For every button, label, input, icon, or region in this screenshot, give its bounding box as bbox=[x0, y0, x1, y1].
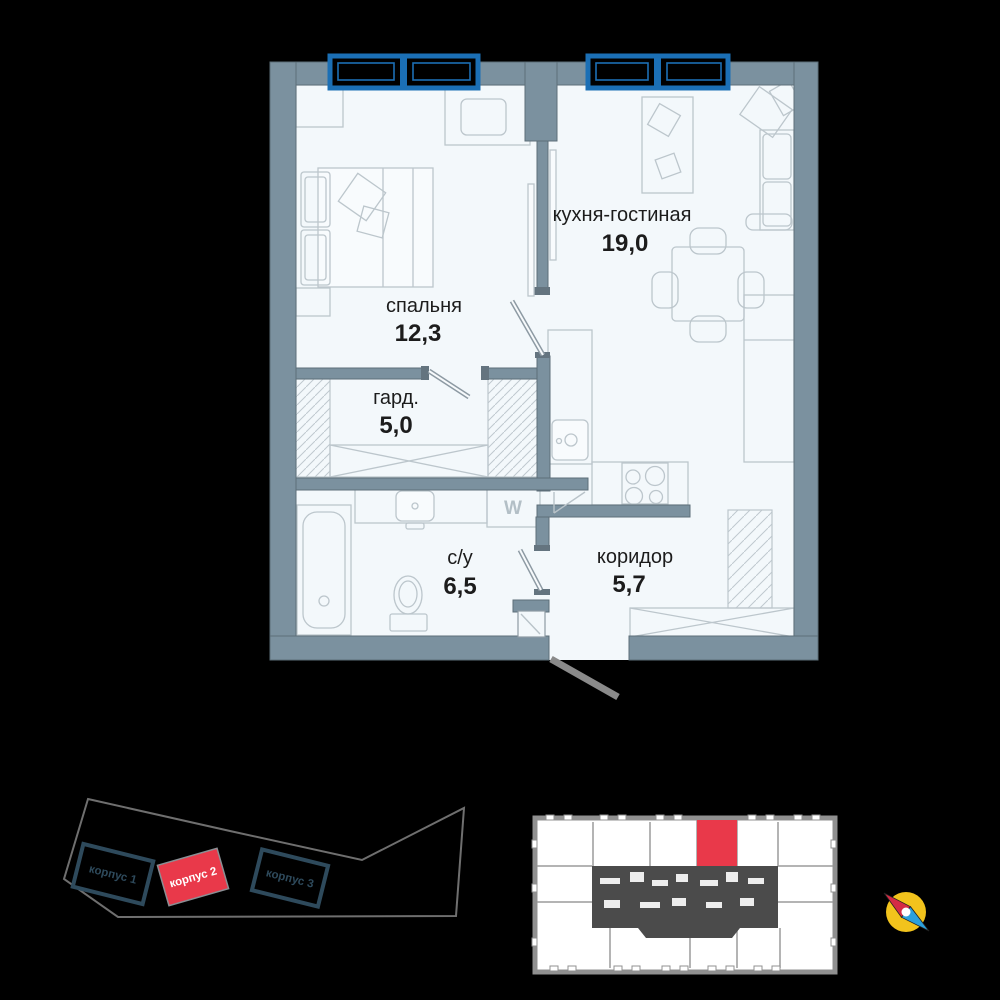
compass-pivot bbox=[902, 908, 911, 917]
wall-bottom-left bbox=[270, 636, 549, 660]
window-2 bbox=[588, 56, 728, 88]
room-area-bedroom: 12,3 bbox=[395, 320, 442, 347]
site-plan: корпус 1 корпус 2 корпус 3 bbox=[64, 799, 464, 917]
closet-hatched-left bbox=[296, 379, 330, 477]
site-building-korpus-2[interactable]: корпус 2 bbox=[157, 848, 228, 905]
corridor-closet-hatched bbox=[728, 510, 772, 608]
room-label-bedroom: спальня bbox=[386, 295, 462, 317]
wall-sliding bbox=[537, 141, 548, 291]
svg-text:корпус 1: корпус 1 bbox=[88, 863, 139, 887]
wall-right bbox=[794, 62, 818, 660]
room-area-wardrobe: 5,0 bbox=[379, 412, 412, 439]
window-1 bbox=[330, 56, 478, 88]
wall-bottom-right bbox=[629, 636, 818, 660]
svg-text:корпус 3: корпус 3 bbox=[265, 867, 315, 890]
site-building-korpus-3[interactable]: корпус 3 bbox=[252, 849, 328, 906]
compass-icon bbox=[884, 892, 929, 932]
floor-keyplan bbox=[532, 815, 836, 972]
room-area-corridor: 5,7 bbox=[612, 571, 645, 598]
washer-label: W bbox=[504, 498, 522, 519]
site-building-korpus-1[interactable]: корпус 1 bbox=[73, 844, 154, 904]
room-area-kitchen-living: 19,0 bbox=[602, 230, 649, 257]
wall-top-b bbox=[476, 62, 527, 85]
entry-niche bbox=[518, 611, 545, 637]
column bbox=[525, 62, 557, 141]
room-label-bathroom: с/у bbox=[447, 547, 473, 569]
double-bed bbox=[301, 168, 433, 287]
wall-top-c bbox=[555, 62, 590, 85]
entry-door-leaf bbox=[551, 659, 618, 697]
room-label-kitchen-living: кухня-гостиная bbox=[553, 204, 692, 226]
wall-bedroom-wardrobe bbox=[296, 368, 427, 379]
keyplan-selected-unit[interactable] bbox=[697, 820, 737, 866]
room-area-bathroom: 6,5 bbox=[443, 573, 476, 600]
keyplan-core bbox=[592, 866, 778, 938]
wall-kitchen-divider bbox=[537, 356, 550, 491]
wall-corridor-top bbox=[537, 505, 690, 517]
wall-bathroom-top bbox=[296, 478, 588, 490]
floor-plan-page: W bbox=[0, 0, 1000, 1000]
closet-hatched-right bbox=[488, 379, 538, 477]
apartment-plan: W bbox=[270, 56, 818, 697]
room-label-wardrobe: гард. bbox=[373, 387, 419, 409]
room-label-corridor: коридор bbox=[597, 546, 673, 568]
wall-left bbox=[270, 62, 296, 660]
